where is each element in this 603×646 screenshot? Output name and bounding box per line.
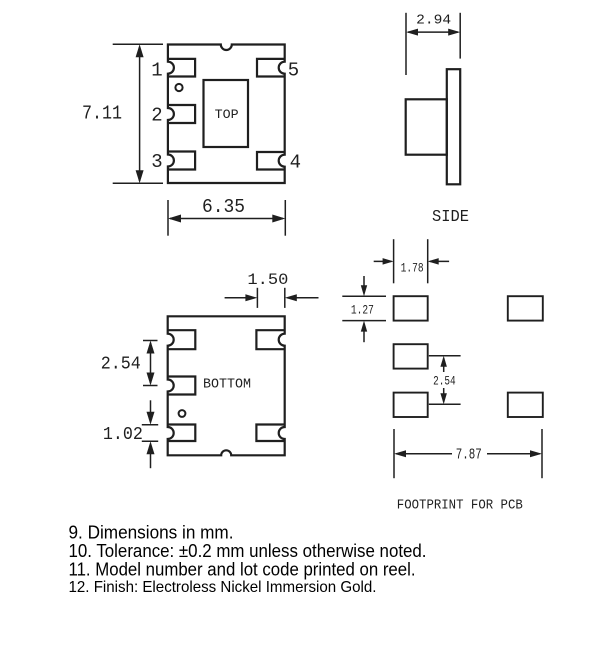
svg-text:TOP: TOP bbox=[215, 107, 239, 122]
svg-text:1.50: 1.50 bbox=[247, 271, 288, 289]
svg-text:11. Model number and lot code: 11. Model number and lot code printed on… bbox=[69, 559, 416, 579]
svg-text:12. Finish: Electroless Nickel: 12. Finish: Electroless Nickel Immersion… bbox=[69, 579, 377, 596]
svg-text:1.78: 1.78 bbox=[401, 261, 424, 276]
svg-text:2: 2 bbox=[151, 104, 162, 126]
svg-text:1.27: 1.27 bbox=[351, 303, 374, 318]
svg-text:7.87: 7.87 bbox=[456, 447, 482, 464]
svg-text:FOOTPRINT FOR PCB: FOOTPRINT FOR PCB bbox=[397, 498, 523, 514]
svg-text:1.02: 1.02 bbox=[103, 425, 143, 445]
svg-text:7.11: 7.11 bbox=[82, 103, 122, 125]
svg-text:2.54: 2.54 bbox=[101, 355, 141, 375]
svg-text:2.94: 2.94 bbox=[416, 12, 451, 28]
svg-text:1: 1 bbox=[151, 59, 162, 81]
svg-text:2.54: 2.54 bbox=[433, 374, 456, 389]
svg-text:4: 4 bbox=[290, 152, 301, 174]
svg-text:6.35: 6.35 bbox=[202, 196, 245, 218]
svg-text:9. Dimensions in mm.: 9. Dimensions in mm. bbox=[69, 523, 234, 543]
svg-text:BOTTOM: BOTTOM bbox=[203, 377, 251, 393]
svg-text:10. Tolerance: ±0.2 mm unless: 10. Tolerance: ±0.2 mm unless otherwise … bbox=[69, 541, 427, 561]
svg-text:3: 3 bbox=[151, 151, 162, 173]
svg-text:5: 5 bbox=[288, 59, 299, 81]
svg-text:SIDE: SIDE bbox=[432, 208, 469, 227]
